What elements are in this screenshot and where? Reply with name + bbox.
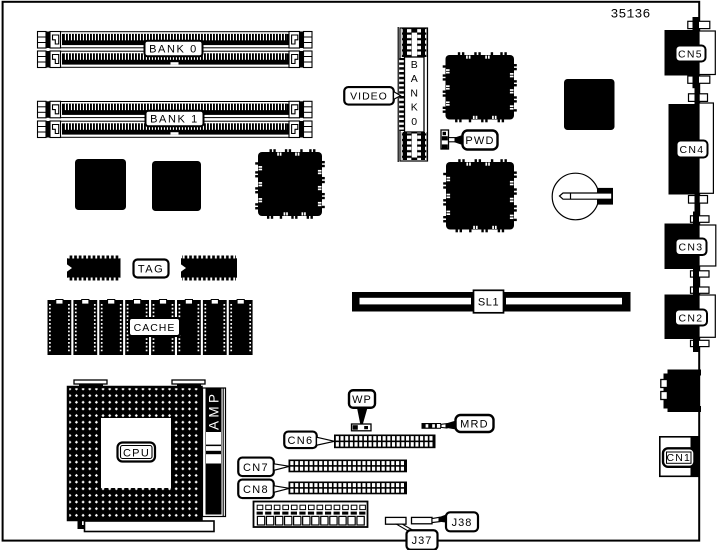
svg-text:K: K: [411, 102, 418, 114]
svg-text:AMP: AMP: [207, 391, 222, 430]
svg-text:CN8: CN8: [243, 484, 269, 496]
svg-text:N: N: [410, 87, 418, 99]
svg-text:CN2: CN2: [679, 312, 704, 324]
svg-text:CN3: CN3: [679, 242, 704, 254]
svg-text:VIDEO: VIDEO: [350, 91, 388, 103]
svg-text:BANK 0: BANK 0: [149, 43, 198, 55]
svg-text:CN7: CN7: [243, 462, 269, 474]
svg-text:MRD: MRD: [460, 418, 489, 430]
svg-text:CACHE: CACHE: [134, 322, 176, 334]
svg-text:0: 0: [411, 116, 417, 128]
svg-text:WP: WP: [352, 394, 372, 406]
svg-text:SL1: SL1: [478, 297, 499, 309]
svg-text:A: A: [411, 73, 418, 85]
svg-text:CPU: CPU: [123, 448, 150, 460]
svg-text:CN4: CN4: [680, 144, 705, 156]
svg-text:J37: J37: [412, 535, 433, 547]
svg-text:BANK 1: BANK 1: [150, 113, 199, 125]
svg-text:CN5: CN5: [678, 48, 703, 60]
svg-text:PWD: PWD: [465, 135, 494, 147]
svg-text:B: B: [411, 59, 418, 71]
svg-text:CN6: CN6: [288, 435, 314, 447]
svg-text:J38: J38: [452, 517, 473, 529]
svg-text:TAG: TAG: [138, 263, 164, 275]
svg-text:CN1: CN1: [666, 452, 691, 464]
svg-text:35136: 35136: [611, 7, 651, 22]
